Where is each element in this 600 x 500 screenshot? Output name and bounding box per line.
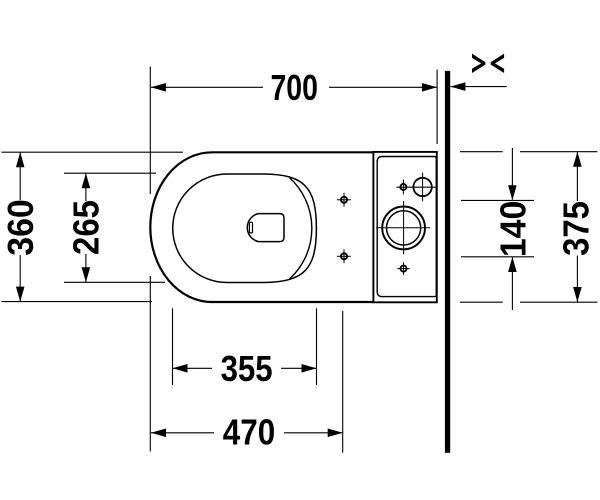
svg-text:360: 360 xyxy=(0,199,41,256)
svg-text:700: 700 xyxy=(270,67,318,108)
svg-text:470: 470 xyxy=(223,412,276,453)
svg-text:140: 140 xyxy=(493,201,534,258)
svg-text:355: 355 xyxy=(221,348,273,389)
svg-text:265: 265 xyxy=(66,200,107,255)
svg-text:375: 375 xyxy=(556,201,597,256)
